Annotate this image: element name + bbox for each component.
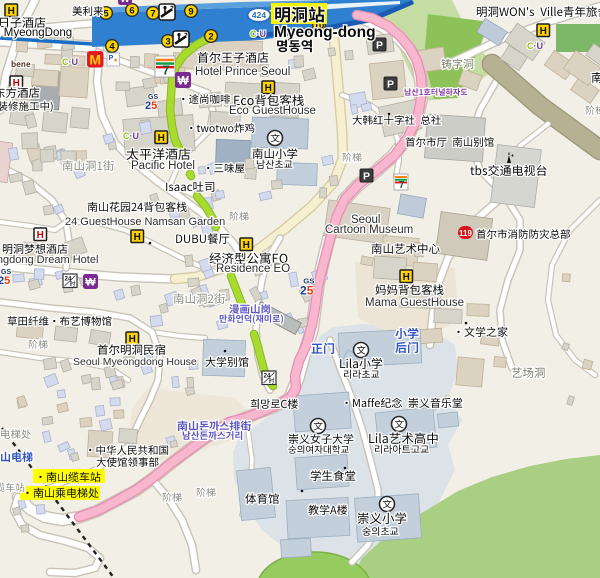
svg-text:H: H: [37, 230, 44, 241]
svg-text:₩: ₩: [120, 0, 130, 5]
svg-text:P: P: [109, 55, 114, 62]
svg-text:3: 3: [165, 36, 170, 47]
svg-text:H: H: [243, 240, 250, 251]
svg-text:4: 4: [109, 41, 115, 52]
svg-text:l MyeongDong: l MyeongDong: [0, 27, 72, 39]
svg-text:Myeong-dong: Myeong-dong: [274, 24, 376, 41]
svg-text:P: P: [376, 40, 383, 52]
svg-text:Residence EO: Residence EO: [216, 263, 290, 275]
svg-text:C·U: C·U: [123, 131, 139, 141]
svg-text:25: 25: [145, 100, 157, 112]
svg-text:H: H: [8, 6, 15, 17]
svg-text:5: 5: [103, 8, 109, 19]
svg-text:9: 9: [188, 6, 193, 17]
svg-text:H: H: [265, 83, 272, 94]
svg-text:Seoul Myeongdong House: Seoul Myeongdong House: [73, 356, 197, 368]
svg-text:7: 7: [162, 63, 169, 78]
svg-text:Hotel Prince Seoul: Hotel Prince Seoul: [195, 66, 290, 78]
svg-text:7: 7: [399, 180, 405, 191]
svg-text:₩: ₩: [177, 74, 189, 88]
svg-text:Eco GuestHouse: Eco GuestHouse: [229, 105, 316, 117]
svg-text:Cartoon Museum: Cartoon Museum: [325, 224, 413, 236]
svg-text:时: 时: [69, 280, 75, 288]
svg-text:H: H: [158, 133, 165, 144]
svg-text:Pacific Hotel: Pacific Hotel: [131, 160, 195, 172]
svg-text:H: H: [403, 272, 410, 283]
svg-text:25: 25: [0, 275, 10, 287]
svg-text:H: H: [134, 232, 141, 243]
svg-text:424: 424: [252, 10, 266, 20]
svg-text:P: P: [387, 79, 394, 91]
svg-text:时: 时: [268, 377, 274, 385]
svg-text:6: 6: [129, 5, 134, 16]
svg-text:7: 7: [150, 8, 155, 19]
svg-text:Mama GuestHouse: Mama GuestHouse: [365, 297, 464, 309]
svg-text:P: P: [363, 171, 370, 183]
svg-text:C·U: C·U: [527, 41, 543, 51]
svg-text:C·U: C·U: [250, 29, 266, 39]
svg-text:25: 25: [300, 284, 314, 298]
svg-text:2: 2: [208, 31, 213, 42]
svg-text:C·U: C·U: [62, 57, 78, 67]
svg-text:M: M: [89, 52, 101, 68]
svg-text:119: 119: [459, 229, 472, 238]
svg-text:24 GuestHouse Namsan Garden: 24 GuestHouse Namsan Garden: [65, 216, 225, 228]
svg-text:Myeongdong Dream Hotel: Myeongdong Dream Hotel: [0, 254, 98, 266]
svg-text:₩: ₩: [85, 277, 96, 289]
svg-text:H: H: [129, 334, 136, 345]
svg-text:H: H: [540, 26, 547, 37]
